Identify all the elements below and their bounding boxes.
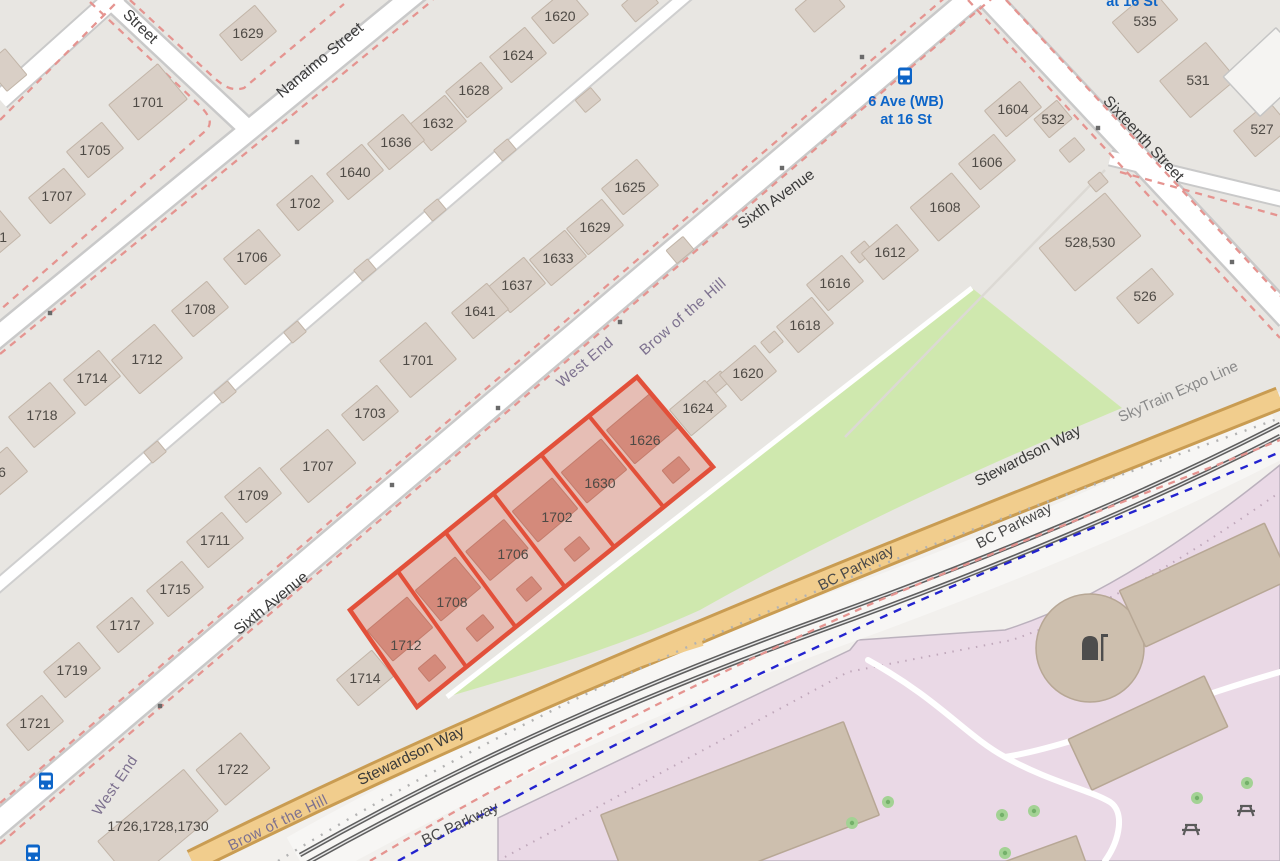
house-number-label: 1701 xyxy=(132,94,163,110)
house-number-label: 1721 xyxy=(19,715,50,731)
tree-icon-core xyxy=(1003,851,1007,855)
house-number-label: 1616 xyxy=(819,275,850,291)
kerb-marker xyxy=(860,55,864,59)
tree-icon-core xyxy=(1245,781,1249,785)
house-number-label: 1628 xyxy=(458,82,489,98)
bus-icon-body xyxy=(39,773,53,790)
transit-stop-label-partial[interactable]: at 16 St xyxy=(1106,0,1158,10)
house-number-label: 1624 xyxy=(682,400,713,416)
house-number-label: 532 xyxy=(1041,111,1065,127)
bus-icon-wheel xyxy=(28,857,31,860)
map-viewport[interactable]: 6 Ave (WB) at 16 St at 16 St 16291701170… xyxy=(0,0,1280,861)
kerb-marker xyxy=(1230,260,1234,264)
house-number-label: 526 xyxy=(1133,288,1157,304)
bus-stop-icon[interactable] xyxy=(39,773,53,790)
bus-icon-wheel xyxy=(907,80,910,83)
map-canvas[interactable]: 6 Ave (WB) at 16 St at 16 St 16291701170… xyxy=(0,0,1280,861)
house-number-label: 1625 xyxy=(614,179,645,195)
house-number-label: 1719 xyxy=(56,662,87,678)
bus-icon-body xyxy=(26,845,40,861)
house-number-label: 1715 xyxy=(159,581,190,597)
tree-icon-core xyxy=(850,821,854,825)
tree-icon-core xyxy=(886,800,890,804)
parcel-house-number-label: 1626 xyxy=(629,432,660,448)
house-number-label: 1711 xyxy=(200,532,230,548)
parcel-house-number-label: 1706 xyxy=(497,546,528,562)
house-number-label: 1620 xyxy=(544,8,575,24)
house-number-label: 528,530 xyxy=(1065,234,1116,250)
bus-stop-icon[interactable] xyxy=(26,845,40,861)
house-number-label: 1706 xyxy=(236,249,267,265)
house-number-label: 1632 xyxy=(422,115,453,131)
house-number-label: 1624 xyxy=(502,47,533,63)
house-number-label: 531 xyxy=(1186,72,1210,88)
transit-stop-label-line1[interactable]: 6 Ave (WB) xyxy=(868,94,944,110)
tree-icon-core xyxy=(1195,796,1199,800)
house-number-label: 1641 xyxy=(464,303,495,319)
bus-icon-window xyxy=(41,776,51,781)
kerb-marker xyxy=(618,320,622,324)
house-number-label: 1726,1728,1730 xyxy=(107,818,208,834)
house-number-label: 1629 xyxy=(579,219,610,235)
bus-icon-body xyxy=(898,68,912,85)
bus-icon-wheel xyxy=(35,857,38,860)
parcel-house-number-label: 1708 xyxy=(436,594,467,610)
kerb-marker xyxy=(496,406,500,410)
kerb-marker xyxy=(158,704,162,708)
house-number-label: 1629 xyxy=(232,25,263,41)
house-number-label: 1705 xyxy=(79,142,110,158)
parcel-house-number-label: 1712 xyxy=(390,637,421,653)
parcel-house-number-label: 1702 xyxy=(541,509,572,525)
bus-icon-window xyxy=(28,848,38,853)
house-number-label: 1722 xyxy=(217,761,248,777)
house-number-label: 1606 xyxy=(971,154,1002,170)
house-number-label: 1708 xyxy=(184,301,215,317)
bus-stop-icon[interactable] xyxy=(898,68,912,85)
kerb-marker xyxy=(1096,126,1100,130)
bus-icon-wheel xyxy=(900,80,903,83)
kerb-marker xyxy=(295,140,299,144)
house-number-label: 1707 xyxy=(302,458,333,474)
house-number-label: 1714 xyxy=(349,670,380,686)
house-number-label: 1707 xyxy=(41,188,72,204)
house-number-label: 1618 xyxy=(789,317,820,333)
tree-icon-core xyxy=(1000,813,1004,817)
parcel-house-number-label: 1630 xyxy=(584,475,615,491)
bus-icon-wheel xyxy=(48,785,51,788)
house-number-label: 1637 xyxy=(501,277,532,293)
house-number-label: 1714 xyxy=(76,370,107,386)
house-number-label: 1703 xyxy=(354,405,385,421)
house-number-label: 1604 xyxy=(997,101,1028,117)
transit-stop-label-line2[interactable]: at 16 St xyxy=(880,112,932,128)
house-number-label: 1608 xyxy=(929,199,960,215)
house-number-label: 1620 xyxy=(732,365,763,381)
house-number-label: 1640 xyxy=(339,164,370,180)
kerb-marker xyxy=(48,311,52,315)
house-number-label: 1718 xyxy=(26,407,57,423)
house-number-label: 1702 xyxy=(289,195,320,211)
house-number-label: 1612 xyxy=(874,244,905,260)
house-number-label: 6 xyxy=(0,464,6,480)
tree-icon-core xyxy=(1032,809,1036,813)
house-number-label: 1636 xyxy=(380,134,411,150)
house-number-label: 1701 xyxy=(402,352,433,368)
kerb-marker xyxy=(780,166,784,170)
house-number-label: 1712 xyxy=(131,351,162,367)
bus-icon-wheel xyxy=(41,785,44,788)
house-number-label: 527 xyxy=(1250,121,1274,137)
kerb-marker xyxy=(390,483,394,487)
house-number-label: 535 xyxy=(1133,13,1157,29)
house-number-label: 1709 xyxy=(237,487,268,503)
bus-icon-window xyxy=(900,71,910,76)
house-number-label: 1717 xyxy=(109,617,140,633)
house-number-label: 1711 xyxy=(0,229,7,245)
house-number-label: 1633 xyxy=(542,250,573,266)
